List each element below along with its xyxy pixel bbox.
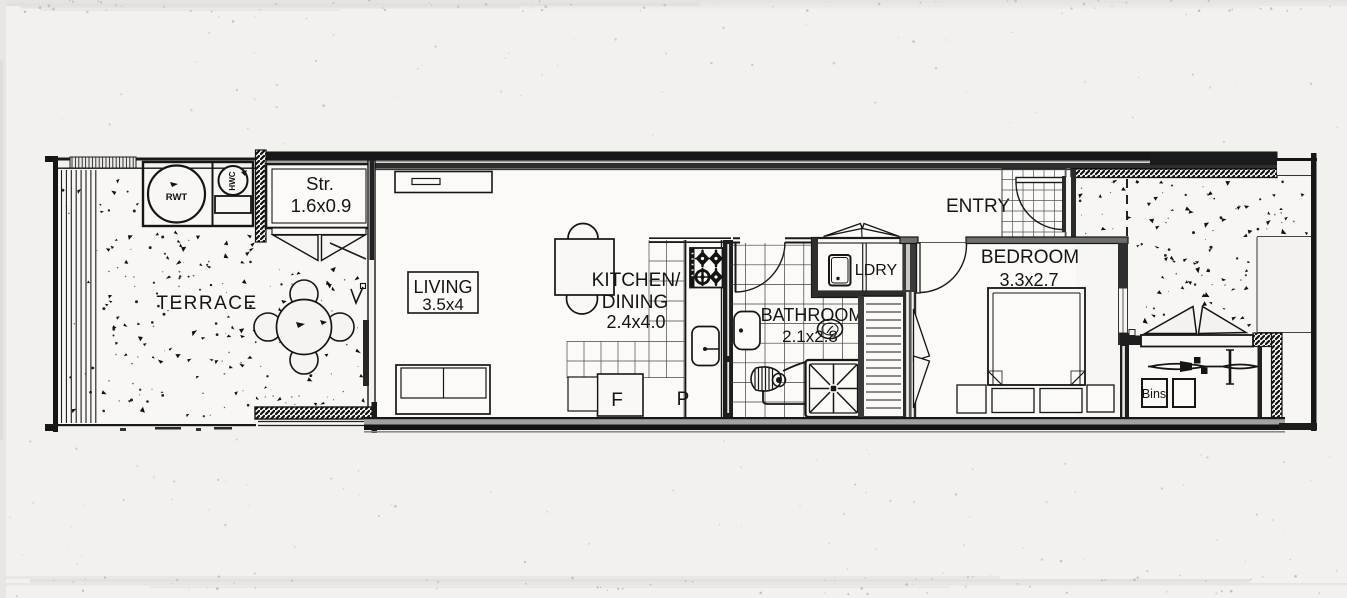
svg-text:LDRY: LDRY — [855, 262, 898, 279]
svg-text:HWC: HWC — [228, 171, 237, 190]
svg-text:BATHROOM: BATHROOM — [761, 305, 864, 325]
svg-text:LIVING: LIVING — [413, 277, 472, 297]
svg-text:Bins: Bins — [1142, 387, 1166, 401]
svg-text:P: P — [677, 389, 690, 410]
svg-text:BEDROOM: BEDROOM — [981, 247, 1079, 268]
svg-text:TERRACE: TERRACE — [156, 293, 257, 314]
svg-text:2.4x4.0: 2.4x4.0 — [606, 312, 665, 332]
svg-text:ENTRY: ENTRY — [946, 196, 1010, 217]
svg-text:3.3x2.7: 3.3x2.7 — [999, 270, 1058, 290]
svg-text:RWT: RWT — [166, 192, 188, 203]
svg-text:F: F — [611, 390, 623, 411]
svg-text:DINING: DINING — [602, 292, 669, 313]
svg-text:Str.: Str. — [306, 173, 334, 194]
svg-text:KITCHEN/: KITCHEN/ — [592, 270, 681, 291]
svg-text:3.5x4: 3.5x4 — [422, 295, 464, 314]
svg-text:1.6x0.9: 1.6x0.9 — [291, 195, 352, 216]
